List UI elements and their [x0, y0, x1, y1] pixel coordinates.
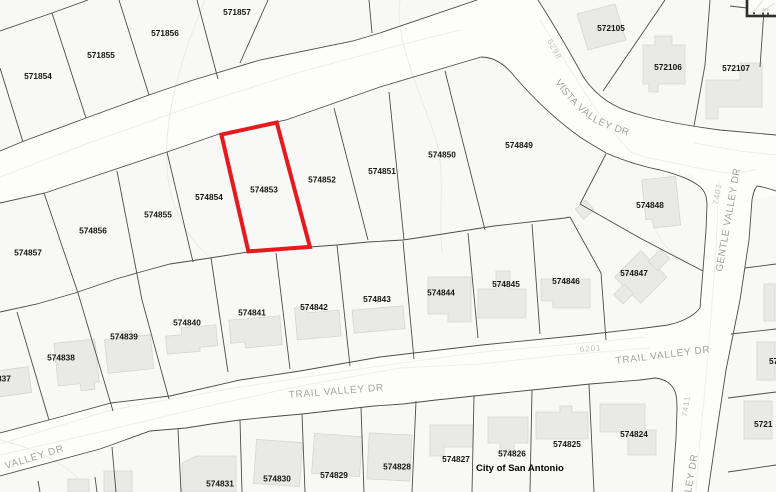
svg-text:City of San Antonio: City of San Antonio — [476, 463, 564, 474]
svg-text:574845: 574845 — [492, 279, 520, 289]
svg-text:574824: 574824 — [620, 429, 648, 439]
svg-text:5721: 5721 — [754, 419, 773, 429]
svg-text:574847: 574847 — [620, 268, 648, 278]
svg-text:571855: 571855 — [87, 50, 115, 60]
svg-text:574841: 574841 — [238, 308, 266, 318]
svg-text:574850: 574850 — [428, 150, 456, 160]
svg-text:574844: 574844 — [427, 288, 455, 298]
svg-text:572: 572 — [769, 356, 776, 366]
svg-text:574826: 574826 — [498, 449, 526, 459]
svg-text:572106: 572106 — [654, 62, 682, 72]
svg-text:574846: 574846 — [552, 276, 580, 286]
svg-text:574849: 574849 — [505, 140, 533, 150]
svg-text:574831: 574831 — [206, 479, 234, 489]
svg-text:574838: 574838 — [47, 353, 75, 363]
svg-text:574855: 574855 — [144, 210, 172, 220]
svg-text:574853: 574853 — [250, 185, 278, 195]
svg-text:574840: 574840 — [173, 318, 201, 328]
svg-text:989: 989 — [762, 7, 769, 12]
svg-text:574852: 574852 — [308, 175, 336, 185]
svg-text:574839: 574839 — [110, 332, 138, 342]
svg-text:574857: 574857 — [14, 248, 42, 258]
svg-text:574829: 574829 — [320, 470, 348, 480]
svg-text:571857: 571857 — [223, 7, 251, 17]
svg-text:574827: 574827 — [442, 454, 470, 464]
svg-text:574830: 574830 — [263, 474, 291, 484]
svg-text:574842: 574842 — [300, 302, 328, 312]
svg-text:574854: 574854 — [195, 192, 223, 202]
svg-text:574828: 574828 — [383, 462, 411, 472]
svg-text:6201: 6201 — [579, 343, 601, 354]
svg-text:574837: 574837 — [0, 374, 11, 384]
svg-text:572107: 572107 — [722, 63, 750, 73]
svg-text:574825: 574825 — [553, 439, 581, 449]
svg-text:571856: 571856 — [151, 28, 179, 38]
svg-text:574843: 574843 — [363, 294, 391, 304]
svg-text:574848: 574848 — [636, 200, 664, 210]
svg-text:571854: 571854 — [24, 71, 52, 81]
svg-text:574851: 574851 — [368, 166, 396, 176]
svg-text:572105: 572105 — [597, 23, 625, 33]
svg-text:574856: 574856 — [79, 226, 107, 236]
